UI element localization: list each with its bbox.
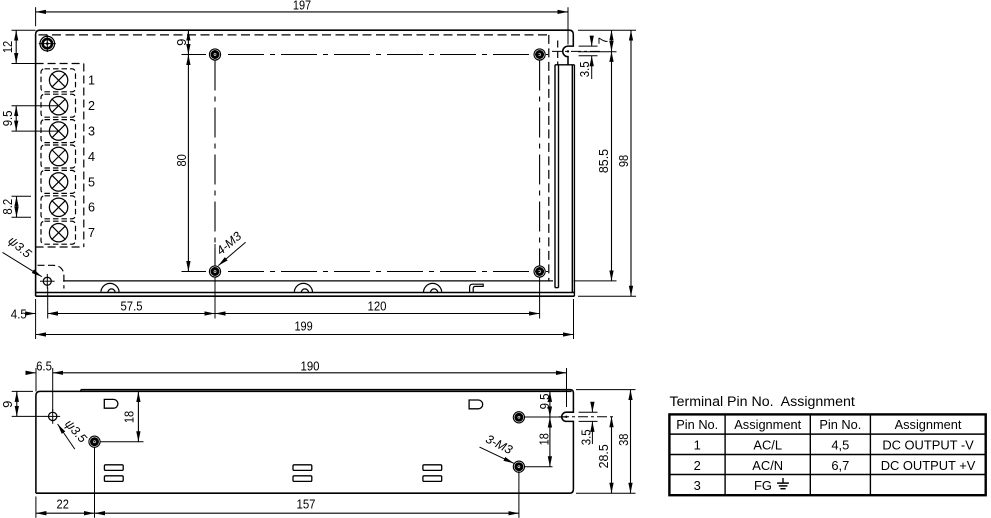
svg-text:AC/N: AC/N <box>752 458 783 473</box>
svg-text:2: 2 <box>694 458 701 473</box>
svg-text:98: 98 <box>616 155 631 167</box>
svg-text:199: 199 <box>294 318 312 333</box>
svg-text:DC OUTPUT -V: DC OUTPUT -V <box>882 438 974 453</box>
svg-text:190: 190 <box>301 359 320 374</box>
svg-text:6,7: 6,7 <box>831 458 849 473</box>
svg-text:8.2: 8.2 <box>0 199 15 215</box>
svg-text:9: 9 <box>174 39 189 46</box>
svg-text:9.5: 9.5 <box>0 111 15 127</box>
svg-text:Pin No.: Pin No. <box>676 417 718 432</box>
svg-text:1: 1 <box>88 74 95 88</box>
svg-text:3.5: 3.5 <box>577 61 592 77</box>
svg-text:4: 4 <box>88 150 95 164</box>
svg-text:18: 18 <box>536 433 551 445</box>
svg-text:157: 157 <box>297 497 316 512</box>
svg-text:3: 3 <box>694 478 701 493</box>
svg-text:38: 38 <box>616 434 631 446</box>
svg-text:6.5: 6.5 <box>36 359 52 374</box>
svg-text:3: 3 <box>88 125 95 139</box>
svg-text:7: 7 <box>88 226 95 240</box>
svg-text:6: 6 <box>88 201 95 215</box>
svg-text:3.5: 3.5 <box>579 429 594 445</box>
svg-text:80: 80 <box>174 154 189 166</box>
svg-text:85.5: 85.5 <box>596 149 611 173</box>
svg-text:DC OUTPUT +V: DC OUTPUT +V <box>881 458 976 473</box>
svg-text:4.5: 4.5 <box>11 306 27 321</box>
svg-text:18: 18 <box>121 411 136 423</box>
svg-text:5: 5 <box>88 175 95 189</box>
svg-text:197: 197 <box>293 0 311 13</box>
svg-text:9: 9 <box>0 401 15 408</box>
svg-text:7: 7 <box>596 37 611 44</box>
svg-text:4,5: 4,5 <box>831 438 849 453</box>
svg-text:28.5: 28.5 <box>596 444 611 468</box>
svg-text:22: 22 <box>57 497 69 512</box>
svg-text:1: 1 <box>694 438 701 453</box>
svg-text:9.5: 9.5 <box>537 394 552 410</box>
svg-text:AC/L: AC/L <box>753 438 782 453</box>
svg-text:12: 12 <box>0 41 15 53</box>
svg-text:FG: FG <box>754 478 772 493</box>
svg-text:Assignment: Assignment <box>895 417 962 432</box>
svg-text:Pin No.: Pin No. <box>819 417 861 432</box>
svg-text:Terminal Pin No. Assignment: Terminal Pin No. Assignment <box>670 394 855 410</box>
svg-text:2: 2 <box>88 99 95 113</box>
svg-text:57.5: 57.5 <box>121 299 143 314</box>
svg-text:120: 120 <box>368 299 387 314</box>
svg-text:Assignment: Assignment <box>734 417 801 432</box>
